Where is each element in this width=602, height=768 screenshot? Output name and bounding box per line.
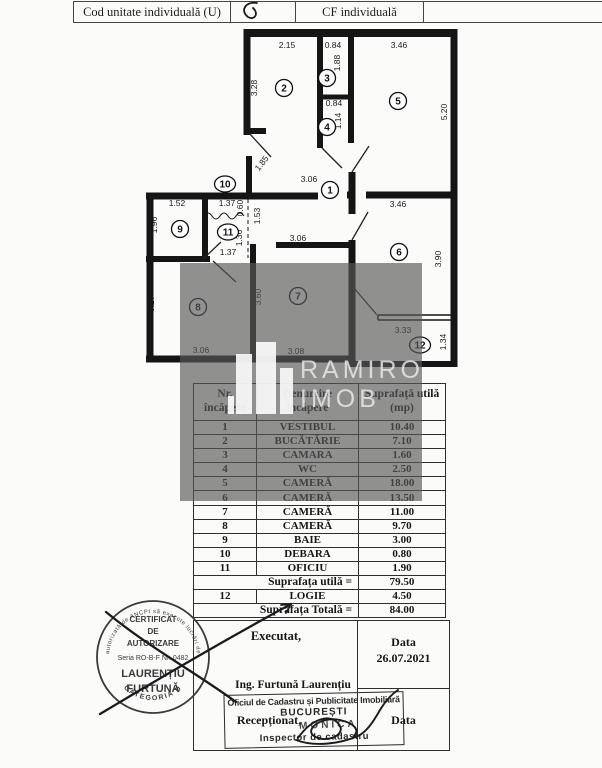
room-number-10: 10	[215, 176, 236, 192]
table-row: 7CAMERĂ11.00	[194, 505, 446, 519]
table-cell: CAMERĂ	[257, 477, 359, 491]
table-row: 6CAMERĂ13.50	[194, 491, 446, 505]
table-cell: WC	[257, 463, 359, 477]
room-number-2: 2	[276, 80, 293, 97]
dim-label: 3.60	[253, 288, 263, 305]
stamp-line: LAURENȚIU	[121, 668, 185, 680]
dim-label: 1.88	[332, 54, 342, 71]
subtotal-row: Suprafața utilă =79.50	[194, 576, 446, 590]
table-cell: 3.00	[359, 533, 446, 547]
svg-text:CATEGORIA D: CATEGORIA D	[122, 684, 183, 702]
dim-label: 1.37	[219, 198, 236, 208]
floor-plan	[146, 29, 457, 367]
table-cell: 1	[194, 421, 257, 435]
table-cell: 7	[194, 505, 257, 519]
dim-label: 3.06	[301, 174, 318, 184]
dim-label: 3.17	[146, 295, 156, 312]
room-numbers: 1 2 3 4 5 6 7 8 9 10 11 12	[172, 70, 431, 354]
svg-text:7: 7	[295, 292, 301, 303]
wavy-line	[204, 213, 244, 219]
table-cell: 9	[194, 533, 257, 547]
logia-rail	[378, 315, 452, 320]
table-cell: 13.50	[359, 491, 446, 505]
table-cell: 10	[194, 547, 257, 561]
table-cell: 2	[194, 435, 257, 449]
watermark-line1: RAMIRO	[300, 356, 424, 384]
room-number-3: 3	[319, 70, 336, 87]
svg-text:12: 12	[414, 341, 426, 352]
dim-label: 1.37	[220, 247, 237, 257]
room-number-5: 5	[390, 93, 407, 110]
table-header-row: Nr. încăpere Denumire încăpere Suprafață…	[194, 384, 446, 421]
stamp-line: FURTUNĂ	[126, 682, 179, 695]
svg-text:11: 11	[223, 228, 234, 239]
total-label: Suprafața Totală =	[194, 604, 359, 618]
dimension-labels: 2.15 0.84 3.46 3.28 1.88 0.84 1.14 5.20 …	[146, 40, 449, 356]
header-strip: Cod unitate individuală (U) CF individua…	[73, 1, 602, 21]
engineer-name: Ing. Furtună Laurențiu	[218, 679, 368, 691]
room-number-11: 11	[218, 224, 239, 240]
room-number-9: 9	[172, 221, 189, 238]
table-row: 11OFICIU1.90	[194, 561, 446, 575]
table-row: 8CAMERĂ9.70	[194, 519, 446, 533]
room-number-12: 12	[410, 337, 431, 353]
col-header-den-line1: Denumire	[257, 388, 358, 402]
ocpi-stamp: Oficiul de Cadastru și Publicitate Imobi…	[223, 691, 404, 749]
table-cell: 1.60	[359, 449, 446, 463]
data-label: Data	[358, 635, 449, 650]
svg-text:5: 5	[395, 97, 401, 108]
stamp-arc-top: autorizată de ANCPI să execute lucrări d…	[105, 609, 201, 654]
dim-label: 3.33	[395, 325, 412, 335]
table-row: 1VESTIBUL10.40	[194, 421, 446, 435]
dim-label: 3.28	[249, 79, 259, 96]
table-cell: 10.40	[359, 421, 446, 435]
subtotal-label: Suprafața utilă =	[194, 576, 359, 590]
stamp-line: CERTIFICAT	[130, 615, 177, 624]
table-cell: CAMERĂ	[257, 519, 359, 533]
table-cell: 11.00	[359, 505, 446, 519]
dim-label: 0.60	[235, 199, 245, 216]
svg-text:10: 10	[219, 180, 231, 191]
subtotal-value: 79.50	[359, 576, 446, 590]
stamp-arc-bottom: CATEGORIA D	[122, 684, 183, 702]
table-row: 2BUCĂTĂRIE7.10	[194, 435, 446, 449]
svg-text:9: 9	[177, 225, 183, 236]
room-number-4: 4	[319, 119, 336, 136]
table-cell: BUCĂTĂRIE	[257, 435, 359, 449]
total-value: 84.00	[359, 604, 446, 618]
col-header-nr-line2: încăpere	[194, 402, 256, 416]
cadastral-document-page: Cod unitate individuală (U) CF individua…	[0, 0, 602, 768]
room-areas-table: Nr. încăpere Denumire încăpere Suprafață…	[193, 383, 446, 618]
table-row: 10DEBARA0.80	[194, 547, 446, 561]
col-header-nr-line1: Nr.	[194, 388, 256, 402]
col-header-denumire: Denumire încăpere	[257, 384, 359, 421]
svg-text:autorizată de ANCPI să execute: autorizată de ANCPI să execute lucrări d…	[105, 609, 201, 654]
dim-label: 1.53	[252, 207, 262, 224]
room-number-6: 6	[391, 244, 408, 261]
data-value: 26.07.2021	[358, 651, 449, 666]
table-cell: 4	[194, 463, 257, 477]
dim-label: 1.36	[234, 229, 244, 246]
table-cell: VESTIBUL	[257, 421, 359, 435]
dim-label: 3.06	[193, 345, 210, 355]
svg-text:6: 6	[396, 248, 402, 259]
table-cell: LOGIE	[257, 590, 359, 604]
room-number-8: 8	[190, 299, 207, 316]
table-row: 12LOGIE4.50	[194, 590, 446, 604]
room-number-7: 7	[290, 288, 307, 305]
cod-unitate-value	[231, 1, 296, 23]
door-lines	[203, 133, 377, 315]
table-cell: 8	[194, 519, 257, 533]
table-row: 4WC2.50	[194, 463, 446, 477]
table-cell: OFICIU	[257, 561, 359, 575]
table-cell: 2.50	[359, 463, 446, 477]
dim-label: 1.96	[149, 216, 159, 233]
table-cell: DEBARA	[257, 547, 359, 561]
dim-label: 1.34	[438, 333, 448, 350]
svg-text:8: 8	[195, 303, 201, 314]
dim-label: 3.46	[391, 40, 408, 50]
table-cell: BAIE	[257, 533, 359, 547]
col-header-nr: Nr. încăpere	[194, 384, 257, 421]
ocpi-stamp-name: MONICA	[299, 719, 358, 732]
cf-individuala-value	[424, 1, 602, 23]
stamp-line: AUTORIZARE	[127, 639, 180, 648]
stamp-line: Seria RO-B-F Nr. 0482	[118, 655, 189, 662]
table-cell: 1.90	[359, 561, 446, 575]
svg-text:2: 2	[281, 84, 287, 95]
svg-text:3: 3	[324, 74, 330, 85]
svg-text:1: 1	[327, 186, 333, 197]
table-cell: 12	[194, 590, 257, 604]
table-cell: 9.70	[359, 519, 446, 533]
stamp-line: DE	[147, 627, 159, 636]
plan-walls	[146, 29, 457, 367]
table-cell: 3	[194, 449, 257, 463]
executat-label: Executat,	[194, 629, 358, 644]
dim-label: 3.90	[433, 250, 443, 267]
table-cell: CAMERĂ	[257, 505, 359, 519]
table-row: 3CAMARA1.60	[194, 449, 446, 463]
table-cell: CAMERĂ	[257, 491, 359, 505]
table-cell: 11	[194, 561, 257, 575]
row-divider	[357, 688, 449, 689]
col-header-den-line2: încăpere	[257, 402, 358, 416]
dim-label: 1.52	[169, 198, 186, 208]
dim-label: 3.06	[290, 233, 307, 243]
ocpi-stamp-line3: Inspector de cadastru	[225, 730, 403, 745]
dim-label: 5.20	[439, 103, 449, 120]
table-cell: 5	[194, 477, 257, 491]
dim-label: 2.15	[279, 40, 296, 50]
dim-label: 0.84	[325, 40, 342, 50]
table-cell: 0.80	[359, 547, 446, 561]
room-number-1: 1	[322, 182, 339, 199]
dim-label: 3.46	[390, 199, 407, 209]
table-row: 5CAMERĂ18.00	[194, 477, 446, 491]
table-row: 9BAIE3.00	[194, 533, 446, 547]
ocpi-stamp-line2: BUCUREȘTI	[225, 705, 403, 720]
col-header-sup-line1: Suprafață utilă	[359, 388, 445, 402]
dim-label: 3.08	[288, 346, 305, 356]
dim-label: 1.14	[333, 112, 343, 129]
cod-unitate-label: Cod unitate individuală (U)	[73, 1, 231, 23]
col-header-suprafata: Suprafață utilă (mp)	[359, 384, 446, 421]
dim-label: 0.84	[326, 98, 343, 108]
col-header-sup-line2: (mp)	[359, 402, 445, 416]
table-cell: 6	[194, 491, 257, 505]
dim-label: 1.85	[253, 153, 271, 172]
stamp-center-text: CERTIFICAT DE AUTORIZARE Seria RO-B-F Nr…	[118, 615, 189, 695]
table-cell: 4.50	[359, 590, 446, 604]
svg-text:4: 4	[324, 123, 330, 134]
table-cell: 18.00	[359, 477, 446, 491]
table-cell: CAMARA	[257, 449, 359, 463]
table-cell: 7.10	[359, 435, 446, 449]
total-row: Suprafața Totală =84.00	[194, 604, 446, 618]
cf-individuala-label: CF individuală	[296, 1, 424, 23]
